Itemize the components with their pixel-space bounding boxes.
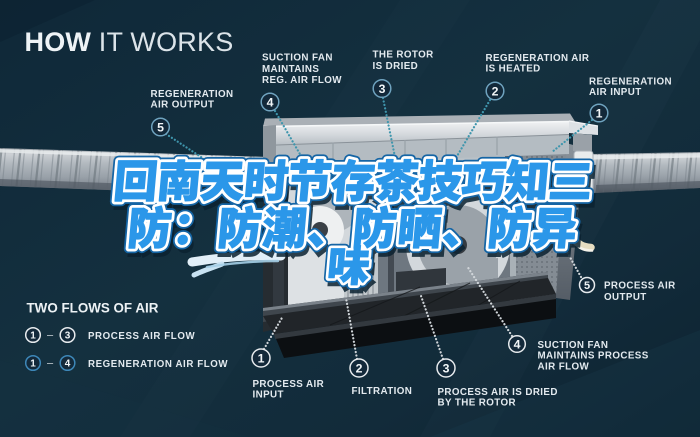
svg-text:1: 1 <box>596 106 603 120</box>
svg-text:–: – <box>47 330 54 342</box>
svg-text:2: 2 <box>356 361 363 375</box>
svg-text:TWO FLOWS OF AIR: TWO FLOWS OF AIR <box>27 301 159 316</box>
svg-text:1: 1 <box>30 359 36 370</box>
svg-text:3: 3 <box>65 331 71 342</box>
svg-text:2: 2 <box>492 84 499 98</box>
svg-text:REGENERATION AIR FLOW: REGENERATION AIR FLOW <box>88 359 228 370</box>
svg-text:5: 5 <box>584 280 590 292</box>
svg-text:4: 4 <box>267 95 274 109</box>
svg-text:PROCESS AIR FLOW: PROCESS AIR FLOW <box>88 331 195 342</box>
svg-text:4: 4 <box>65 359 71 370</box>
svg-text:–: – <box>47 358 54 370</box>
svg-text:FILTRATION: FILTRATION <box>352 386 413 397</box>
svg-text:3: 3 <box>443 361 450 375</box>
svg-text:1: 1 <box>258 351 265 365</box>
svg-text:HOW IT WORKS: HOW IT WORKS <box>25 27 234 57</box>
svg-text:4: 4 <box>514 337 521 351</box>
svg-text:1: 1 <box>30 331 36 342</box>
svg-text:3: 3 <box>379 82 386 96</box>
svg-text:5: 5 <box>157 120 164 134</box>
